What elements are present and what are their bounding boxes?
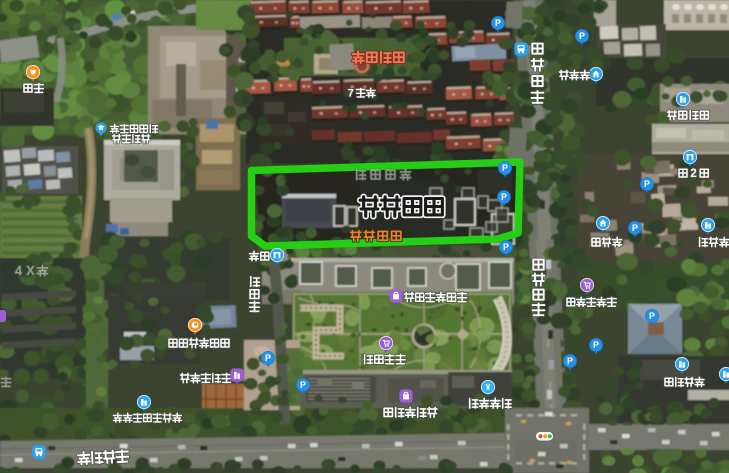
svg-text:¥: ¥ [486, 383, 491, 392]
svg-text:P: P [644, 179, 650, 189]
svg-text:P: P [632, 223, 638, 233]
svg-text:4: 4 [15, 264, 22, 278]
svg-text:P: P [501, 192, 507, 202]
svg-text:P: P [300, 380, 306, 390]
svg-text:2: 2 [690, 168, 696, 180]
svg-text:P: P [265, 353, 271, 363]
svg-text:X: X [26, 264, 35, 278]
svg-text:P: P [567, 356, 573, 366]
svg-text:P: P [495, 18, 501, 28]
svg-text:7: 7 [348, 88, 354, 100]
svg-text:P: P [649, 311, 655, 321]
svg-text:P: P [502, 163, 508, 173]
svg-text:P: P [593, 340, 599, 350]
svg-text:P: P [579, 31, 585, 41]
svg-text:P: P [503, 242, 509, 252]
